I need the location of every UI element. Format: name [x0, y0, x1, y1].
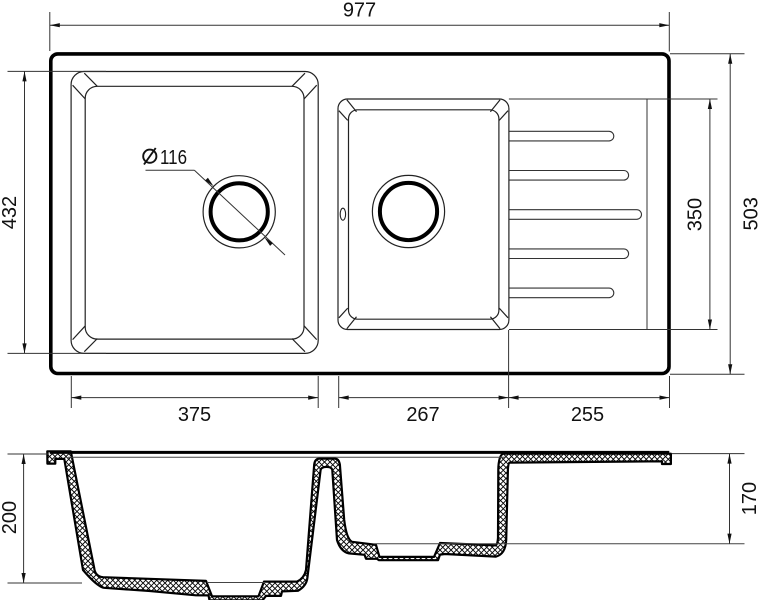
svg-text:200: 200: [0, 501, 21, 534]
svg-text:116: 116: [160, 147, 187, 169]
svg-text:350: 350: [685, 198, 707, 231]
svg-text:503: 503: [741, 197, 761, 230]
svg-text:977: 977: [343, 0, 376, 22]
svg-text:432: 432: [0, 196, 21, 229]
svg-text:255: 255: [571, 404, 604, 426]
svg-text:267: 267: [406, 404, 439, 426]
svg-text:375: 375: [178, 404, 211, 426]
svg-text:170: 170: [739, 482, 761, 515]
